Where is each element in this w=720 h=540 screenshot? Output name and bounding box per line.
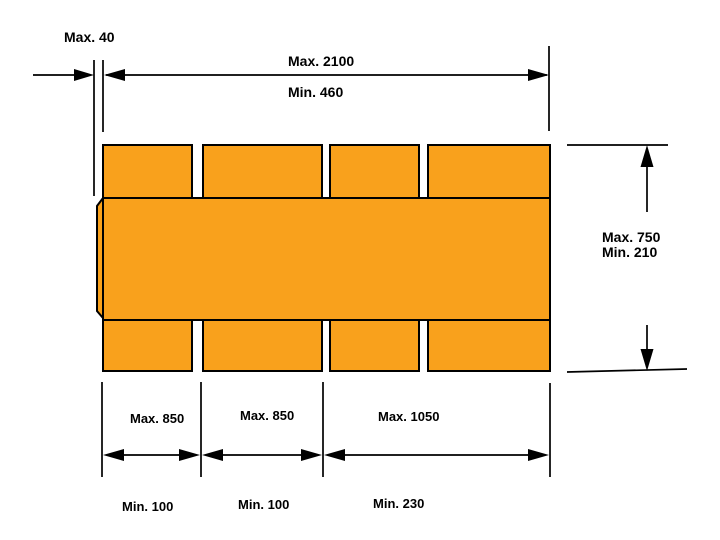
arrowhead-left-icon	[202, 449, 223, 461]
diagram-canvas: Max. 40 Max. 2100 Min. 460 Max. 750 Min.…	[0, 0, 720, 540]
arrowhead-left-icon	[104, 69, 125, 81]
arrowhead-right-icon	[528, 449, 549, 461]
height-min-label: Min. 210	[602, 244, 657, 260]
dim-panels: Max. 850 Max. 850 Max. 1050 Min. 100 Min…	[102, 382, 550, 514]
glue-flap-dim-label: Max. 40	[64, 29, 115, 45]
top-flap-4	[428, 145, 550, 198]
carton-blank	[97, 145, 550, 371]
dim-height: Max. 750 Min. 210	[567, 145, 687, 372]
overall-length-max-label: Max. 2100	[288, 53, 354, 69]
panel3-max-label: Max. 1050	[378, 409, 439, 424]
top-flap-2	[203, 145, 322, 198]
overall-length-min-label: Min. 460	[288, 84, 343, 100]
arrowhead-right-icon	[179, 449, 200, 461]
bottom-flap-4	[428, 320, 550, 371]
carton-dimension-diagram: Max. 40 Max. 2100 Min. 460 Max. 750 Min.…	[0, 0, 720, 540]
bottom-flap-1	[103, 320, 192, 371]
height-bottom-tick	[567, 369, 687, 372]
bottom-flap-3	[330, 320, 419, 371]
panel3-min-label: Min. 230	[373, 496, 424, 511]
dim-overall-length: Max. 2100 Min. 460	[104, 46, 549, 131]
panel1-max-label: Max. 850	[130, 411, 184, 426]
top-flap-1	[103, 145, 192, 198]
arrowhead-left-icon	[103, 449, 124, 461]
arrowhead-up-icon	[641, 145, 654, 167]
arrowhead-left-icon	[324, 449, 345, 461]
top-flap-3	[330, 145, 419, 198]
panel2-max-label: Max. 850	[240, 408, 294, 423]
panel2-min-label: Min. 100	[238, 497, 289, 512]
arrowhead-right-icon	[301, 449, 322, 461]
bottom-flap-2	[203, 320, 322, 371]
main-panel	[103, 198, 550, 320]
arrowhead-right-icon	[74, 69, 94, 81]
arrowhead-down-icon	[641, 349, 654, 371]
height-max-label: Max. 750	[602, 229, 661, 245]
arrowhead-right-icon	[528, 69, 549, 81]
panel1-min-label: Min. 100	[122, 499, 173, 514]
